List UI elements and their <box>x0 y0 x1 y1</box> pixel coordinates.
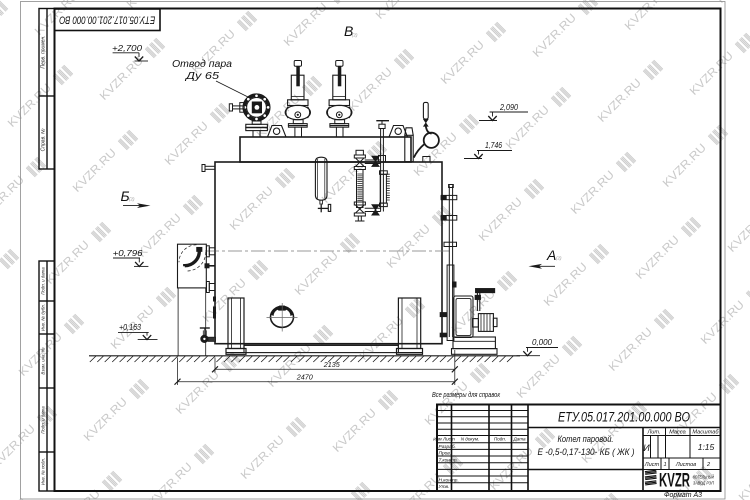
svg-text:+0,163: +0,163 <box>119 323 141 332</box>
svg-text:Масса: Масса <box>669 430 686 436</box>
svg-text:2135: 2135 <box>323 362 340 369</box>
svg-text:1,746: 1,746 <box>485 141 502 150</box>
svg-text:И: И <box>643 443 650 453</box>
svg-text:Подп. и дата: Подп. и дата <box>41 406 46 434</box>
svg-text:Изм Лист: Изм Лист <box>433 437 455 442</box>
svg-text:Е -0,5-0,17-130- КБ ( ЖК ): Е -0,5-0,17-130- КБ ( ЖК ) <box>538 447 635 458</box>
svg-text:Т.контр.: Т.контр. <box>439 457 458 463</box>
svg-text:Подп. и дата: Подп. и дата <box>41 267 46 295</box>
svg-text:КОТЕЛЬНЫЙ: КОТЕЛЬНЫЙ <box>693 473 715 480</box>
svg-text:KVZR: KVZR <box>659 471 690 492</box>
svg-text:Перв. примен.: Перв. примен. <box>41 35 47 68</box>
svg-text:Все размеры для справок: Все размеры для справок <box>432 390 500 399</box>
svg-text:2,090: 2,090 <box>499 103 518 112</box>
svg-text:+2,700: +2,700 <box>112 44 143 53</box>
svg-text:1: 1 <box>663 462 666 468</box>
svg-text:Пров.: Пров. <box>439 451 452 457</box>
svg-text:ЕТУ.05.017.201.00.000 ВО: ЕТУ.05.017.201.00.000 ВО <box>558 409 690 425</box>
svg-text:Ду 65: Ду 65 <box>185 70 219 82</box>
svg-text:Подп.: Подп. <box>494 437 506 442</box>
svg-text:0,000: 0,000 <box>532 338 552 347</box>
svg-text:+0,796: +0,796 <box>113 249 144 258</box>
svg-text:Н.контр.: Н.контр. <box>439 477 459 483</box>
svg-text:(2): (2) <box>352 33 358 38</box>
svg-text:Масштаб: Масштаб <box>692 430 719 436</box>
svg-text:Отвод пара: Отвод пара <box>172 58 232 70</box>
svg-text:Дата: Дата <box>512 437 526 442</box>
svg-text:Формат А3: Формат А3 <box>664 492 702 499</box>
svg-text:Утв.: Утв. <box>439 484 450 490</box>
svg-text:Котел паровой.: Котел паровой. <box>558 434 614 445</box>
svg-text:1:15: 1:15 <box>698 442 715 452</box>
svg-text:N докум.: N докум. <box>461 437 480 442</box>
svg-text:Листов: Листов <box>675 462 696 468</box>
svg-text:ЗАВОД РЭП: ЗАВОД РЭП <box>693 481 715 486</box>
svg-text:Инв. № дубл.: Инв. № дубл. <box>41 304 46 331</box>
svg-text:(2): (2) <box>129 197 135 202</box>
svg-text:(2): (2) <box>556 256 562 261</box>
svg-text:ЕТУ.05.017.201.00.000 ВО: ЕТУ.05.017.201.00.000 ВО <box>59 14 155 26</box>
svg-text:А: А <box>546 247 556 263</box>
svg-text:Инв. № подл.: Инв. № подл. <box>41 458 46 485</box>
svg-text:Лист: Лист <box>644 462 660 468</box>
svg-text:Взам. инв. №: Взам. инв. № <box>41 347 46 374</box>
svg-text:Справ. №: Справ. № <box>41 128 47 151</box>
svg-text:2470: 2470 <box>296 375 313 382</box>
svg-text:Разраб.: Разраб. <box>439 444 456 450</box>
svg-text:Лит.: Лит. <box>646 430 660 436</box>
